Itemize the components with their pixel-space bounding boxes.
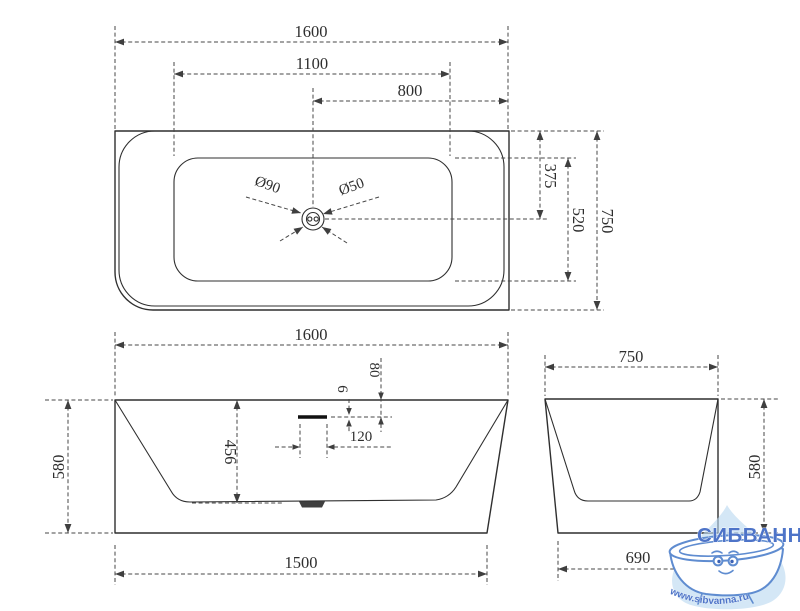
front-drain-detail xyxy=(299,502,325,508)
dim-top-overall-length-label: 1600 xyxy=(295,22,328,41)
watermark-brand: СИБВАННА xyxy=(697,524,800,547)
dim-overflow-height-label: 6 xyxy=(334,385,350,393)
dim-front-height-label: 580 xyxy=(49,455,68,480)
dim-top-overall-width-label: 750 xyxy=(598,209,617,234)
dim-side-height-label: 580 xyxy=(745,455,764,480)
dim-side-base-width-label: 690 xyxy=(626,548,651,567)
mascot-pupil-right xyxy=(730,560,733,563)
dim-front-base-length-label: 1500 xyxy=(285,553,318,572)
dim-drain-offset-label: 800 xyxy=(398,81,423,100)
dim-side-width-label: 750 xyxy=(619,347,644,366)
dim-front-depth-label: 456 xyxy=(221,440,240,465)
dim-basin-width-label: 520 xyxy=(569,208,588,233)
dim-rim-to-drain-label: 375 xyxy=(541,164,560,189)
dim-basin-length-label: 1100 xyxy=(296,54,328,73)
dim-overflow-length-label: 120 xyxy=(350,429,373,445)
bathtub-dimension-drawing: 1600 1100 800 375 520 750 xyxy=(0,0,800,611)
dim-overflow-offset-label: 80 xyxy=(366,363,382,378)
drawing-canvas: 1600 1100 800 375 520 750 xyxy=(0,0,800,611)
mascot-pupil-left xyxy=(717,560,720,563)
dim-front-length-label: 1600 xyxy=(295,325,328,344)
